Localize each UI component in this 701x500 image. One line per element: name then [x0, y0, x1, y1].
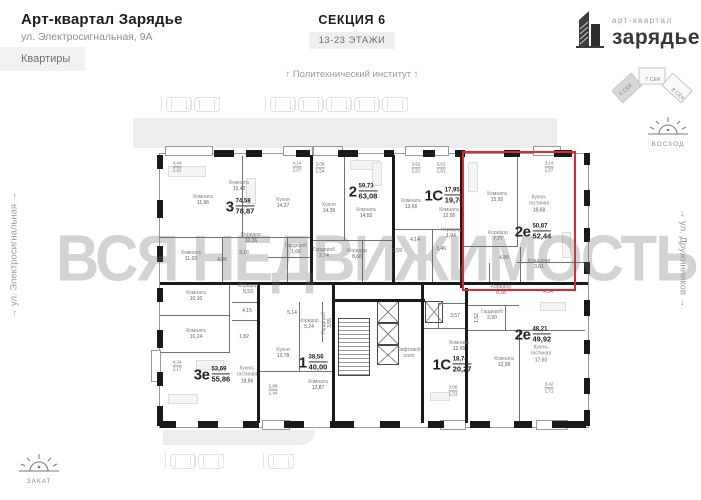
- room-label: 3,57: [450, 313, 460, 319]
- wall-segment: [157, 288, 163, 302]
- room-label: Коридор10,36: [241, 232, 261, 245]
- parking-separator: [219, 96, 220, 111]
- room-label: Гардероб3,55: [321, 312, 334, 334]
- balcony-rail: [165, 146, 213, 156]
- room-label: Комната10,10: [186, 290, 206, 303]
- partition-wall: [313, 240, 393, 241]
- road-top: [133, 118, 557, 148]
- wall-segment: [284, 421, 304, 428]
- apartment-area-total: 20,27: [453, 365, 472, 374]
- partition-wall: [232, 320, 258, 321]
- wall-segment: [470, 421, 490, 428]
- apartment-area-total: 63,08: [359, 192, 378, 201]
- apartments-button[interactable]: Квартиры: [0, 47, 85, 71]
- partition-wall: [242, 156, 243, 238]
- balcony-area-label: 3,081,54: [316, 161, 325, 174]
- partition-wall: [505, 305, 506, 331]
- balcony-area-label: 4,142,07: [293, 160, 302, 173]
- wall-segment: [380, 421, 400, 428]
- wall-segment: [338, 150, 358, 157]
- room-label: 1,52: [474, 313, 480, 323]
- wall-segment: [257, 285, 260, 423]
- sunrise-widget: ВОСХОД: [645, 113, 691, 148]
- wall-segment: [428, 421, 444, 428]
- car-icon: [194, 97, 220, 112]
- furniture: [540, 302, 566, 311]
- room-label: Кухня-гостиная17,60: [526, 345, 556, 364]
- parking-separator: [293, 453, 294, 468]
- apartment-type: 1С: [425, 188, 443, 205]
- partition-wall: [438, 303, 439, 329]
- logo-text: арт-квартал зарядье: [612, 16, 700, 48]
- wall-segment: [214, 150, 234, 157]
- parking-separator: [194, 453, 195, 468]
- apartment-label-2е[interactable]: 2е48,2149,92: [515, 326, 551, 343]
- room-label: Гардероб1,66: [285, 243, 307, 256]
- apartment-area-main: 17,95: [445, 187, 464, 195]
- balcony-area-label: 3,421,71: [545, 381, 554, 394]
- sunrise-icon: [646, 113, 690, 139]
- section-header: СЕКЦИЯ 6 13-23 ЭТАЖИ: [310, 13, 395, 49]
- car-icon: [166, 97, 192, 112]
- apartment-label-1С[interactable]: 1С18,7420,27: [433, 356, 472, 373]
- partition-wall: [468, 305, 519, 306]
- apartment-type: 3: [226, 199, 234, 216]
- apartment-label-1[interactable]: 138,5640,00: [299, 354, 328, 371]
- address: ул. Электросигнальная, 9А: [21, 31, 183, 43]
- page: Арт-квартал Зарядье ул. Электросигнальна…: [0, 0, 701, 500]
- furniture: [168, 394, 198, 404]
- floors-badge: 13-23 ЭТАЖИ: [310, 32, 395, 49]
- parking-separator: [265, 96, 266, 111]
- room-label: Гардероб2,74: [313, 247, 335, 260]
- room-label: Кухня14,39: [322, 202, 335, 215]
- parking-separator: [161, 96, 162, 111]
- selected-apartment-highlight[interactable]: [462, 151, 576, 291]
- partition-wall: [160, 237, 311, 238]
- page-title: Арт-квартал Зарядье: [21, 11, 183, 28]
- apartment-area-total: 49,92: [532, 335, 551, 344]
- sunset-label: ЗАКАТ: [16, 478, 62, 485]
- car-icon: [382, 97, 408, 112]
- room-label: 3,16: [239, 250, 249, 256]
- parking-separator: [350, 96, 351, 111]
- apartment-label-2[interactable]: 259,7363,08: [349, 183, 378, 200]
- apartment-area-total: 55,86: [211, 375, 230, 384]
- wall-segment: [157, 155, 163, 169]
- room-label: 1,82: [239, 334, 249, 340]
- wall-segment: [423, 150, 435, 157]
- sunset-icon: [17, 450, 61, 476]
- wall-segment: [160, 421, 176, 428]
- section-title: СЕКЦИЯ 6: [310, 13, 395, 27]
- room-label: Коридор8,66: [347, 248, 367, 261]
- wall-segment: [157, 372, 163, 386]
- car-icon: [170, 454, 196, 469]
- logo-top-label: арт-квартал: [612, 16, 700, 25]
- apartment-area-main: 74,58: [236, 198, 255, 206]
- parking-separator: [263, 453, 264, 468]
- elevator-shaft: [377, 301, 399, 323]
- street-label-left: → ул. Электросигнальная →: [9, 192, 20, 318]
- furniture: [372, 162, 382, 186]
- sunset-widget: ЗАКАТ: [16, 450, 62, 485]
- wall-segment: [198, 421, 218, 428]
- stairs: [338, 318, 370, 376]
- room-label: Комната14,55: [356, 207, 376, 220]
- room-label: Комната13,98: [494, 356, 514, 369]
- section-7-label[interactable]: 7 СЕК: [645, 77, 661, 83]
- apartment-area-total: 78,87: [236, 207, 255, 216]
- room-label: Комната12,87: [308, 379, 328, 392]
- partition-wall: [160, 315, 230, 316]
- balcony-area-label: 4,342,17: [173, 359, 182, 372]
- parking-separator: [165, 453, 166, 468]
- wall-segment: [246, 150, 262, 157]
- partition-wall: [232, 302, 258, 303]
- elevator-shaft: [377, 323, 399, 345]
- apartment-label-1С[interactable]: 1С17,9519,76: [425, 187, 464, 204]
- room-label: Кухня14,27: [276, 197, 289, 210]
- wall-segment: [584, 228, 590, 242]
- room-label: Комната10,24: [186, 328, 206, 341]
- room-label: Кухня-гостиная18,86: [232, 366, 262, 385]
- section-selector[interactable]: 6 СЕК 7 СЕК 8 СЕК: [608, 62, 698, 112]
- room-label: Комната13,66: [401, 198, 421, 211]
- balcony-area-label: 3,061,53: [449, 384, 458, 397]
- wall-segment: [157, 330, 163, 348]
- apartment-area-main: 38,56: [309, 354, 328, 362]
- wall-segment: [310, 155, 313, 284]
- apartment-area-total: 40,00: [309, 363, 328, 372]
- parking-separator: [378, 96, 379, 111]
- room-label: Комната12,65: [449, 340, 469, 353]
- logo-bottom-label: зарядье: [612, 27, 700, 48]
- wall-segment: [157, 246, 163, 262]
- parking-separator: [407, 96, 408, 111]
- room-label: Гардероб2,90: [481, 309, 503, 322]
- room-label: Коридор8,53: [238, 283, 258, 296]
- wall-segment: [157, 200, 163, 218]
- section-8-shape[interactable]: [662, 73, 692, 102]
- logo-building-icon: [576, 6, 606, 48]
- wall-segment: [584, 190, 590, 206]
- partition-wall: [229, 285, 230, 352]
- road-bottom: [163, 430, 315, 445]
- apartment-area-main: 18,74: [453, 356, 472, 364]
- wall-segment: [584, 300, 590, 316]
- wall-segment: [584, 262, 590, 274]
- car-icon: [354, 97, 380, 112]
- elevator-shaft: [425, 301, 443, 323]
- wall-segment: [335, 299, 425, 302]
- parking-separator: [294, 96, 295, 111]
- balcony-area-label: 3,621,81: [412, 161, 421, 174]
- parking-separator: [223, 453, 224, 468]
- partition-wall: [344, 156, 345, 241]
- room-label: 4,06: [217, 257, 227, 263]
- room-label: Комната11,96: [193, 194, 213, 207]
- wall-segment: [552, 421, 586, 428]
- room-label: 5,14: [287, 310, 297, 316]
- balcony-area-label: 2,881,44: [269, 383, 278, 396]
- apartment-type: 3е: [194, 367, 210, 384]
- sunrise-label: ВОСХОД: [645, 141, 691, 148]
- apartment-type: 1: [299, 355, 307, 372]
- apartment-type: 1С: [433, 357, 451, 374]
- room-label: Коридор1,94: [441, 227, 461, 240]
- apartment-label-3[interactable]: 374,5878,87: [226, 198, 255, 215]
- elevator-hall-label: Лифтовой холл: [395, 347, 423, 360]
- wall-segment: [584, 340, 590, 354]
- street-label-top: ↑ Политехнический институт ↑: [285, 69, 418, 80]
- apartment-area-main: 59,73: [359, 183, 378, 191]
- car-icon: [298, 97, 324, 112]
- wall-segment: [584, 378, 590, 394]
- wall-segment: [392, 155, 395, 285]
- partition-wall: [160, 352, 230, 353]
- parking-separator: [322, 96, 323, 111]
- room-label: 1,59: [392, 248, 402, 254]
- partition-wall: [432, 230, 433, 283]
- car-icon: [268, 454, 294, 469]
- wall-segment: [514, 421, 532, 428]
- room-label: 4,14: [410, 237, 420, 243]
- partition-wall: [519, 331, 520, 422]
- partition-wall: [424, 328, 466, 329]
- room-label: Комната15,42: [229, 180, 249, 193]
- car-icon: [326, 97, 352, 112]
- furniture: [430, 392, 450, 401]
- partition-wall: [268, 257, 311, 258]
- apartment-type: 2: [349, 184, 357, 201]
- wall-segment: [296, 150, 310, 157]
- wall-segment: [584, 153, 590, 165]
- street-label-right: → ул. Дружинников →: [678, 209, 689, 307]
- balcony-area-label: 3,621,81: [437, 161, 446, 174]
- apartment-area-main: 53,69: [211, 366, 230, 374]
- room-label: Комната11,69: [181, 250, 201, 263]
- balcony-area-label: 4,442,22: [173, 160, 182, 173]
- room-label: Кухня12,78: [276, 347, 289, 360]
- partition-wall: [438, 303, 466, 304]
- apartment-label-3е[interactable]: 3е53,6955,86: [194, 366, 230, 383]
- parking-separator: [190, 96, 191, 111]
- room-label: Комната12,55: [439, 207, 459, 220]
- room-label: 4,15: [242, 308, 252, 314]
- room-label: Коридор5,24: [299, 318, 319, 331]
- brand-block: Арт-квартал Зарядье ул. Электросигнальна…: [21, 11, 183, 43]
- apartment-type: 2е: [515, 327, 531, 344]
- apartment-area-total: 19,76: [445, 196, 464, 205]
- room-label: 3,46: [436, 246, 446, 252]
- car-icon: [198, 454, 224, 469]
- apartment-area-main: 48,21: [532, 326, 551, 334]
- logo[interactable]: арт-квартал зарядье: [576, 6, 700, 48]
- car-icon: [270, 97, 296, 112]
- wall-segment: [332, 285, 335, 423]
